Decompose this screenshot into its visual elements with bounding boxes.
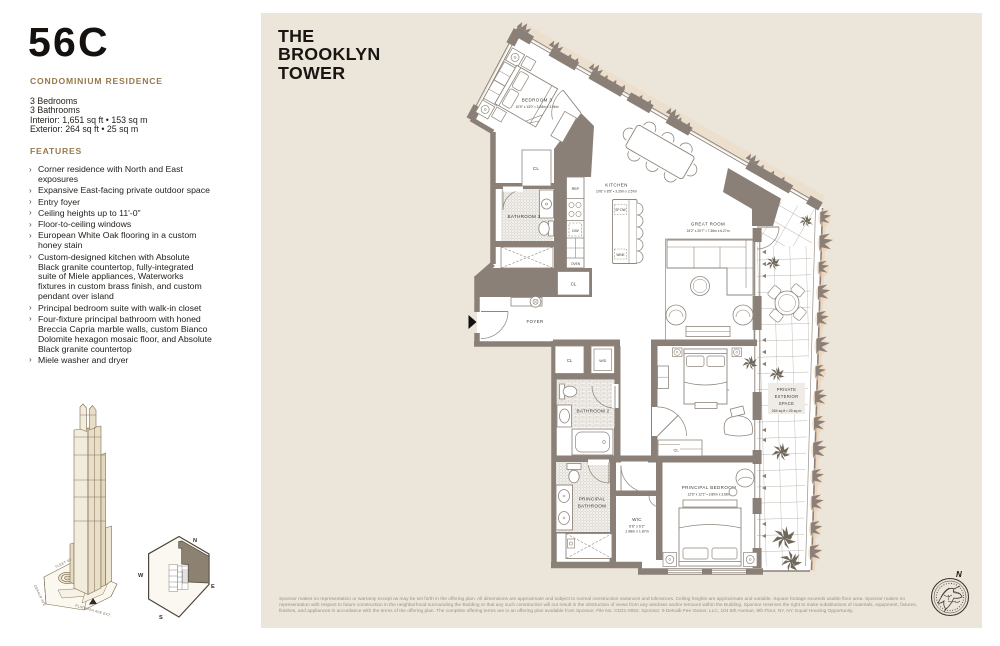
svg-text:PRIVATE: PRIVATE [777,387,796,392]
svg-text:W/D: W/D [599,359,606,363]
svg-text:OVEN: OVEN [571,262,581,266]
svg-text:CL: CL [571,282,577,287]
svg-text:WIC: WIC [632,517,642,522]
svg-text:CL: CL [567,358,573,363]
svg-text:10'6" x 8'5" • 3.20m x 2.57m: 10'6" x 8'5" • 3.20m x 2.57m [596,190,637,194]
svg-text:1.98m x 1.87m: 1.98m x 1.87m [625,530,649,534]
svg-text:REF: REF [572,186,580,191]
svg-text:SP DW: SP DW [615,208,625,212]
svg-text:W: W [138,573,144,579]
svg-text:CL: CL [533,166,540,171]
svg-text:DW: DW [572,228,579,233]
svg-text:N: N [956,570,962,579]
svg-text:BATHROOM: BATHROOM [578,504,607,509]
svg-text:264 sq ft • 25 sq m: 264 sq ft • 25 sq m [772,409,802,413]
svg-text:CL: CL [673,448,679,453]
svg-text:SPACE: SPACE [779,401,794,406]
svg-text:S: S [159,615,163,621]
svg-text:N: N [193,538,197,544]
svg-text:PRINCIPAL: PRINCIPAL [579,497,606,502]
svg-text:6'6" x 6'2": 6'6" x 6'2" [629,525,645,529]
svg-text:KITCHEN: KITCHEN [605,183,628,188]
svg-text:PRINCIPAL BEDROOM: PRINCIPAL BEDROOM [682,485,737,490]
svg-text:FOYER: FOYER [526,319,543,324]
svg-text:WINE: WINE [616,253,624,257]
svg-text:BATHROOM 3: BATHROOM 3 [507,214,540,219]
svg-text:BATHROOM 2: BATHROOM 2 [576,409,609,414]
svg-text:EXTERIOR: EXTERIOR [775,394,799,399]
svg-text:12'6" x 12'1" • 3.80m x 3.68m: 12'6" x 12'1" • 3.80m x 3.68m [688,493,731,497]
svg-text:E: E [211,584,215,590]
svg-text:24'2" x 20'7" • 7.36m x 6.27m: 24'2" x 20'7" • 7.36m x 6.27m [687,229,730,233]
svg-text:GREAT ROOM: GREAT ROOM [691,222,725,227]
svg-text:BEDROOM 3: BEDROOM 3 [522,98,553,103]
